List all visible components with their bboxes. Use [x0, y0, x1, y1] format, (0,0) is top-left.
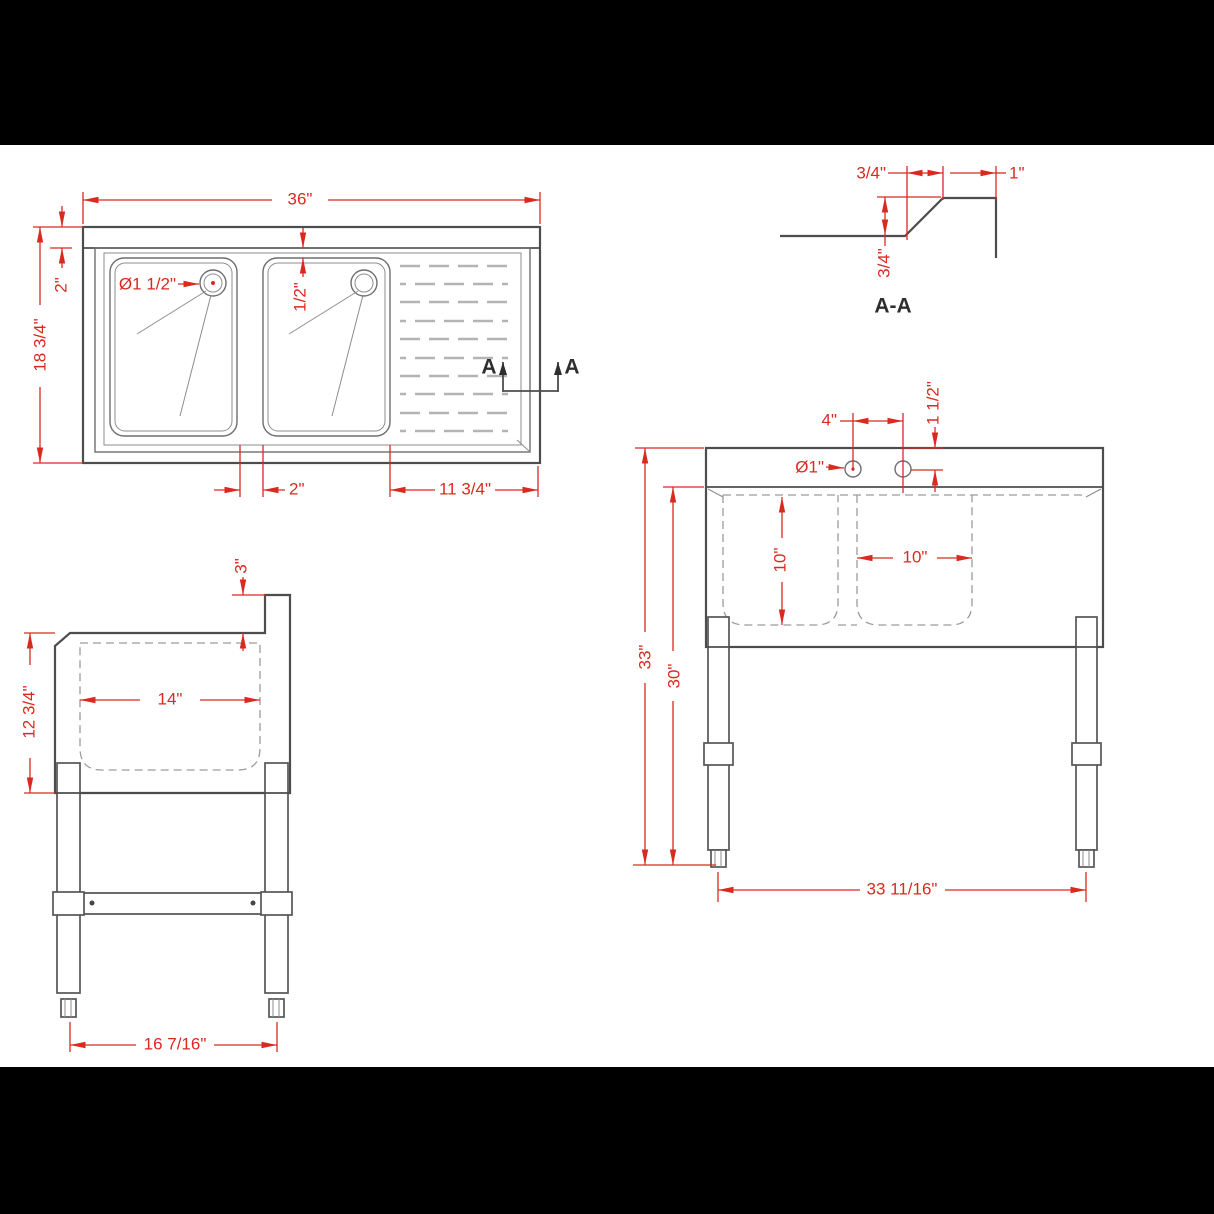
faucet-spacing-label: 4" — [822, 411, 838, 430]
sink-outline-plan — [83, 227, 540, 463]
section-title: A-A — [874, 295, 911, 318]
bowl-depth-label: 10" — [771, 548, 790, 573]
section-marker-a-left: A — [481, 356, 496, 379]
drain-center-mark — [211, 281, 215, 285]
body-height-label: 12 3/4" — [20, 685, 39, 738]
bowl-width-label: 10" — [903, 548, 928, 567]
slope-run-label: 3/4" — [856, 164, 886, 183]
faucet-diameter-label: Ø1" — [795, 458, 824, 477]
side-rear-foot — [269, 999, 284, 1017]
bowl-gap-label: 2" — [289, 480, 305, 499]
front-right-leg — [1076, 617, 1097, 850]
faucet-offset-label: 1 1/2" — [924, 381, 943, 425]
drainboard-width-label: 11 3/4" — [439, 480, 491, 499]
leg-span-side-label: 16 7/16" — [144, 1035, 207, 1054]
backsplash-height-label: 3" — [232, 558, 251, 574]
rise-label: 3/4" — [875, 248, 894, 278]
side-rear-leg-collar — [261, 892, 292, 915]
backsplash-depth-label: 2" — [52, 277, 71, 293]
side-front-leg — [57, 763, 80, 993]
top-flat-label: 1" — [1009, 164, 1025, 183]
top-view-geometry — [83, 227, 540, 463]
section-marker-a-right: A — [564, 356, 579, 379]
bowl-setback-label: 1/2" — [291, 282, 310, 312]
top-view: 36" 2" 18 3/4" Ø1 1/2" 1/2" — [31, 190, 580, 499]
overall-height-label: 33" — [636, 645, 655, 670]
side-front-leg-collar — [53, 892, 84, 915]
brace-bolt-right — [251, 901, 256, 906]
screenshot-canvas: 36" 2" 18 3/4" Ø1 1/2" 1/2" — [0, 0, 1214, 1214]
technical-drawing: 36" 2" 18 3/4" Ø1 1/2" 1/2" — [0, 0, 1214, 1214]
front-left-leg-collar — [704, 743, 733, 765]
brace-bolt-left — [90, 901, 95, 906]
overall-depth-label: 18 3/4" — [31, 318, 50, 371]
working-height-label: 30" — [665, 664, 684, 689]
side-rear-leg — [265, 763, 288, 993]
bowl-front-to-back-label: 14" — [158, 690, 183, 709]
side-front-foot — [61, 999, 76, 1017]
overall-width-label: 36" — [288, 190, 313, 209]
leg-span-front-label: 33 11/16" — [867, 880, 938, 899]
front-right-foot — [1079, 850, 1094, 867]
front-right-leg-collar — [1072, 743, 1101, 765]
front-left-leg — [708, 617, 729, 850]
drain-diameter-label: Ø1 1/2" — [119, 275, 176, 294]
